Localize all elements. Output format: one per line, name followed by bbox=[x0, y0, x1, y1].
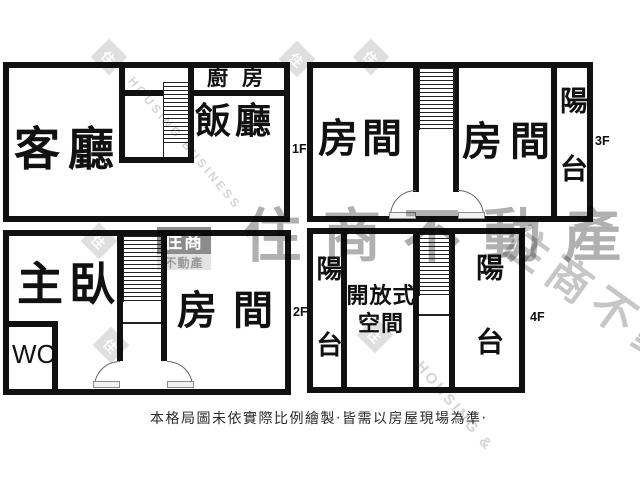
wall-1f-stair-bottom bbox=[119, 157, 194, 163]
room-label-living: 客廳 bbox=[14, 126, 122, 172]
floor-label-2f: 2F bbox=[293, 305, 308, 319]
stairs-1f bbox=[163, 82, 190, 145]
stairs-4f bbox=[419, 234, 451, 296]
room-label-kitchen: 廚房 bbox=[207, 68, 277, 89]
stairs-2f-landing-line bbox=[123, 322, 161, 324]
stairs-4f-landing-line bbox=[419, 314, 449, 316]
disclaimer-text: 本格局圖未依實際比例繪製‧皆需以房屋現場為準‧ bbox=[150, 408, 487, 428]
door-leaf-2f-right bbox=[167, 381, 194, 388]
room-label-4f-balcony-left: 陽台 bbox=[315, 255, 341, 407]
room-label-dining: 飯廳 bbox=[195, 103, 275, 139]
floorplan-canvas: 客廳 飯廳 廚房 1F 房間 房間 陽台 3F 主臥 WC 房間 2F 陽台 開… bbox=[0, 0, 640, 480]
floor-label-4f: 4F bbox=[530, 310, 545, 324]
room-label-2f-room: 房間 bbox=[177, 291, 289, 331]
room-label-4f-balcony-right: 陽台 bbox=[474, 253, 502, 401]
stairs-1f-stringers bbox=[163, 145, 190, 157]
room-label-3f-left: 房間 bbox=[318, 119, 406, 159]
door-leaf-3f-right bbox=[458, 212, 485, 219]
floor-label-3f: 3F bbox=[595, 134, 610, 148]
room-label-master: 主臥 bbox=[17, 261, 121, 307]
room-label-3f-right: 房間 bbox=[462, 122, 558, 162]
wall-1f-kitchen-bottom bbox=[188, 90, 287, 96]
room-label-wc: WC bbox=[12, 341, 55, 367]
door-leaf-2f-left bbox=[93, 381, 120, 388]
door-leaf-3f-left bbox=[389, 212, 416, 219]
room-label-open-space: 開放式空間 bbox=[344, 282, 418, 338]
wall-2f-wc-top bbox=[3, 321, 58, 327]
stairs-2f bbox=[123, 236, 163, 302]
room-label-3f-balcony: 陽台 bbox=[558, 86, 586, 222]
wall-1f-stair-landing bbox=[119, 90, 164, 96]
stairs-3f bbox=[419, 68, 455, 130]
floor-label-1f: 1F bbox=[292, 142, 307, 156]
